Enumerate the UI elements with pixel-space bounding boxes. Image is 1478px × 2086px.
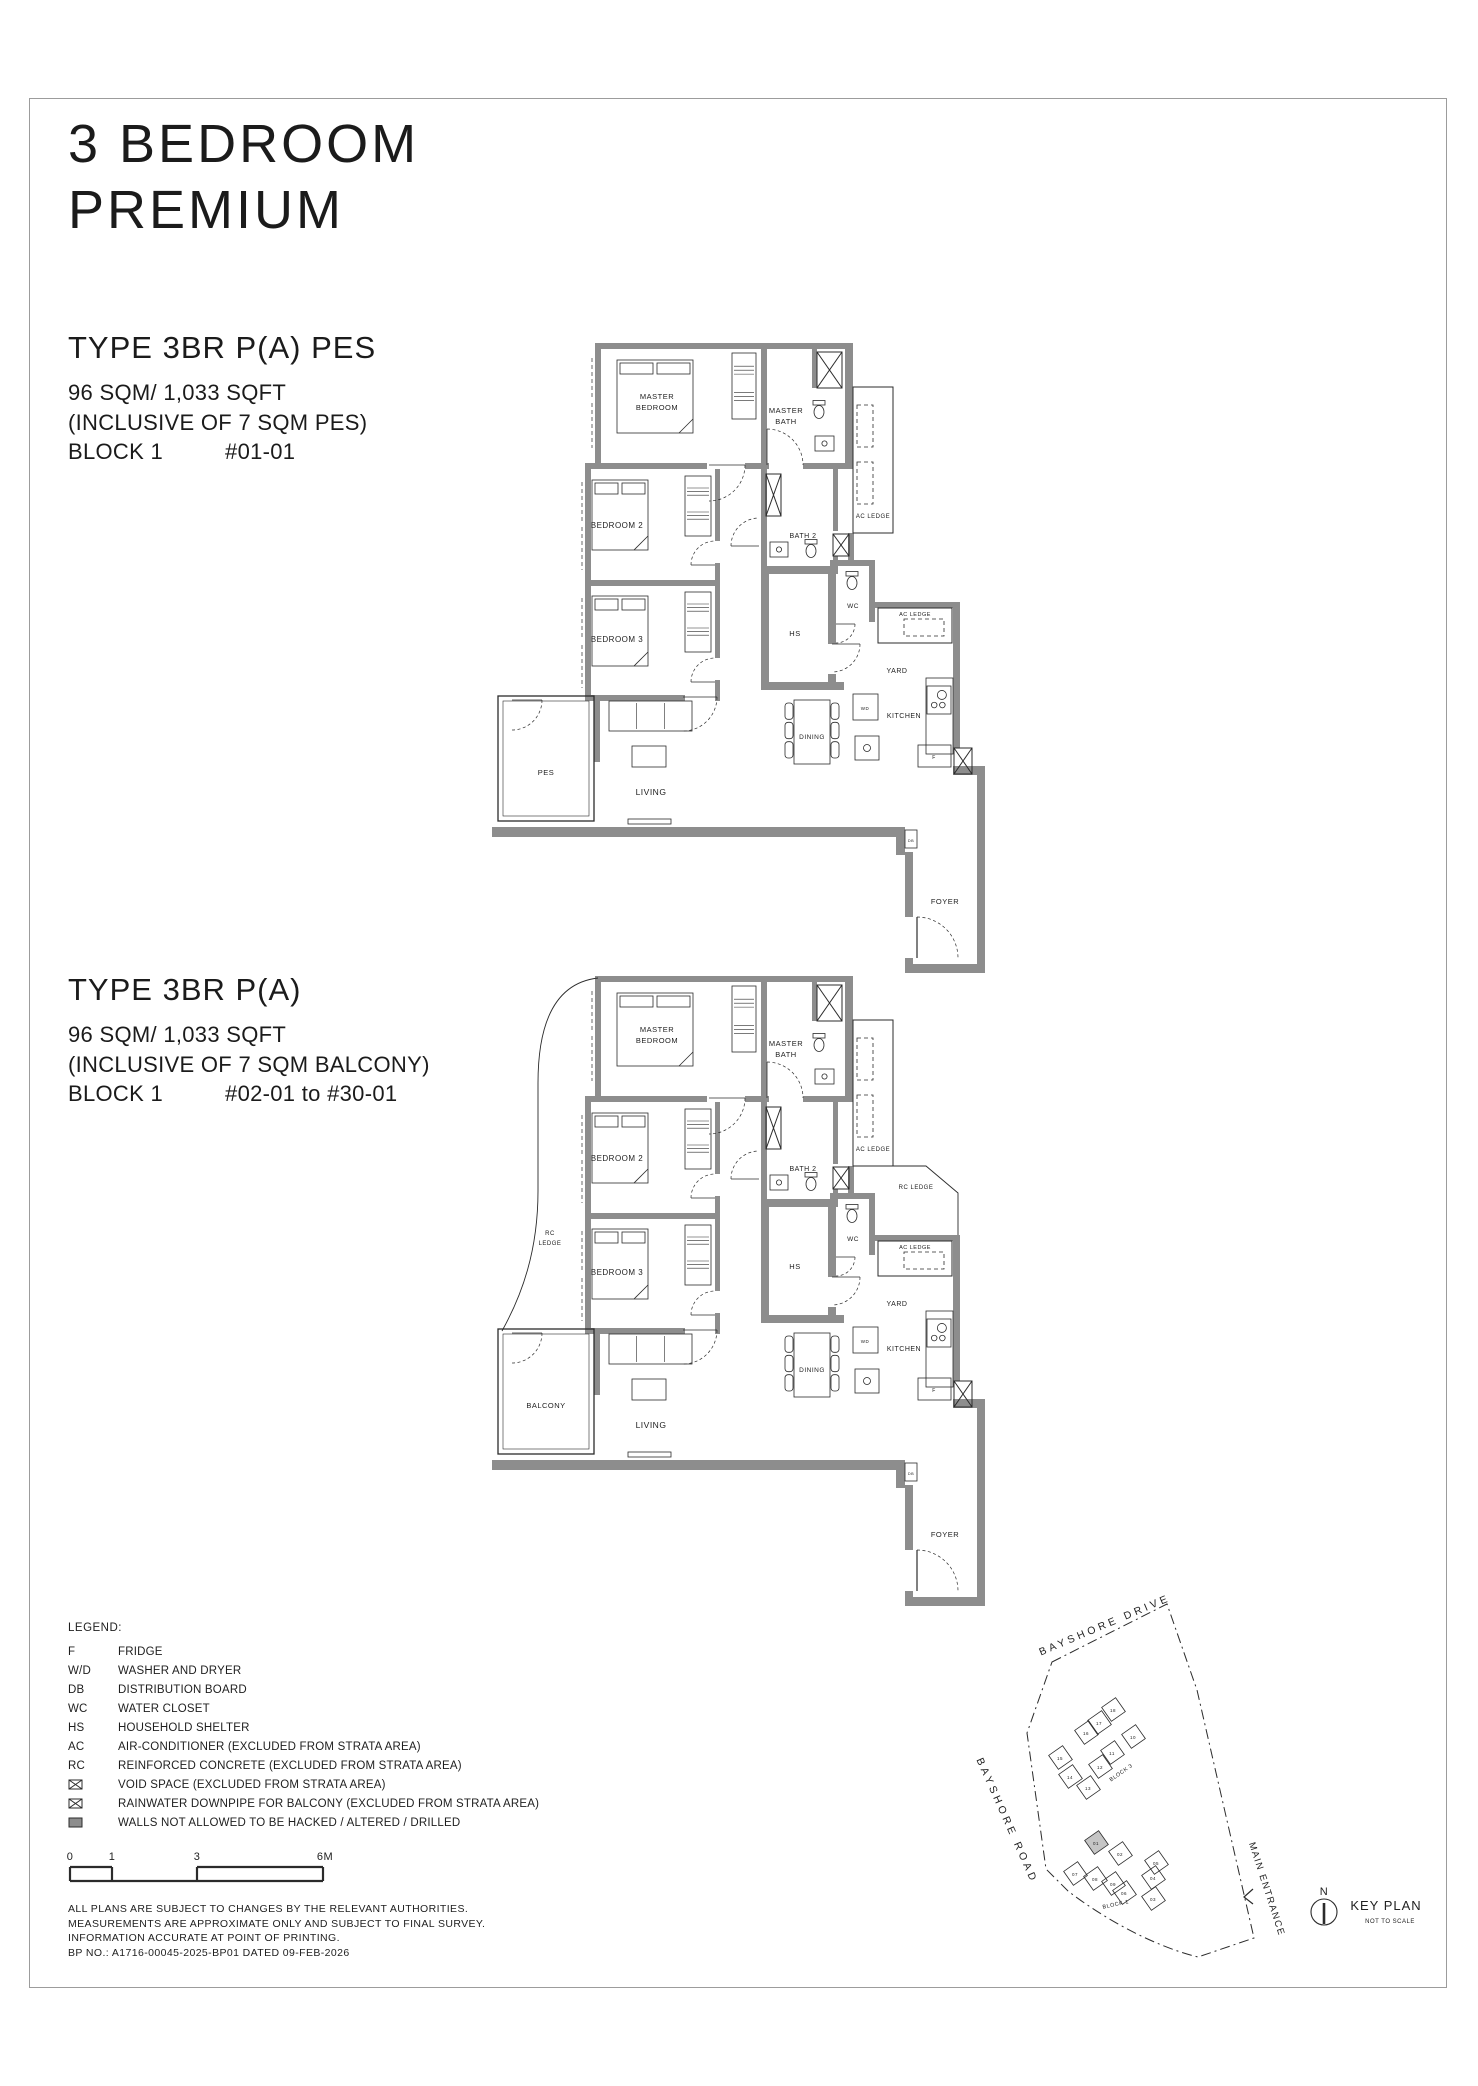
svg-text:16: 16 bbox=[1083, 1731, 1089, 1736]
svg-text:DB: DB bbox=[908, 839, 914, 843]
floor-plan-type-3br-pa: WDFDBMASTERBEDROOMMASTERBATHBEDROOM 2BED… bbox=[482, 966, 992, 1614]
room-label-yard: YARD bbox=[887, 668, 908, 675]
road-label-bayshore-drive: BAYSHORE DRIVE bbox=[1037, 1592, 1172, 1658]
label: 03 bbox=[1150, 1897, 1156, 1902]
label: 05 bbox=[1153, 1861, 1159, 1866]
keyplan-title-label: KEY PLAN bbox=[1350, 1898, 1421, 1913]
plan2-inclusive: (INCLUSIVE OF 7 SQM BALCONY) bbox=[68, 1050, 468, 1080]
label: LEDGE bbox=[539, 1241, 562, 1247]
plan2-area: 96 SQM/ 1,033 SQFT bbox=[68, 1020, 468, 1050]
svg-text:DINING: DINING bbox=[799, 1367, 825, 1374]
fridge-label: F bbox=[932, 1388, 936, 1394]
svg-text:BLOCK 3: BLOCK 3 bbox=[1109, 1763, 1134, 1783]
disclaimer: ALL PLANS ARE SUBJECT TO CHANGES BY THE … bbox=[68, 1902, 485, 1960]
legend-desc: WATER CLOSET bbox=[118, 1703, 210, 1715]
legend-desc: REINFORCED CONCRETE (EXCLUDED FROM STRAT… bbox=[118, 1760, 462, 1772]
fridge-label: F bbox=[932, 755, 936, 761]
svg-text:DB: DB bbox=[908, 1472, 914, 1476]
floor-plan-type-3br-pa-pes: WDFDBMASTERBEDROOMMASTERBATHBEDROOM 2BED… bbox=[482, 333, 992, 981]
svg-text:BATH: BATH bbox=[775, 1050, 796, 1059]
svg-text:12: 12 bbox=[1097, 1765, 1103, 1770]
disclaimer-line: INFORMATION ACCURATE AT POINT OF PRINTIN… bbox=[68, 1931, 485, 1946]
svg-text:WD: WD bbox=[861, 706, 870, 711]
room-label-bedroom3: BEDROOM 3 bbox=[591, 635, 644, 644]
svg-text:03: 03 bbox=[1150, 1897, 1156, 1902]
label: 14 bbox=[1067, 1775, 1073, 1780]
hack-wall-icon bbox=[68, 1817, 118, 1828]
svg-text:BATH 2: BATH 2 bbox=[790, 1166, 817, 1173]
svg-text:BEDROOM: BEDROOM bbox=[636, 403, 678, 412]
svg-text:AC LEDGE: AC LEDGE bbox=[856, 1147, 890, 1153]
room-label-yard: YARD bbox=[887, 1301, 908, 1308]
label: 3 bbox=[194, 1851, 201, 1863]
legend-desc: AIR-CONDITIONER (EXCLUDED FROM STRATA AR… bbox=[118, 1741, 421, 1753]
legend-desc: HOUSEHOLD SHELTER bbox=[118, 1722, 250, 1734]
plan1-block: BLOCK 1 bbox=[68, 439, 163, 464]
legend-row: HSHOUSEHOLD SHELTER bbox=[68, 1718, 628, 1737]
label: 12 bbox=[1097, 1765, 1103, 1770]
room-label-hs: HS bbox=[789, 629, 800, 638]
washer-dryer-label: WD bbox=[861, 706, 870, 711]
legend-row: WALLS NOT ALLOWED TO BE HACKED / ALTERED… bbox=[68, 1813, 628, 1832]
label: 18 bbox=[1110, 1708, 1116, 1713]
svg-text:FOYER: FOYER bbox=[931, 1530, 959, 1539]
void-space-icon bbox=[68, 1798, 118, 1809]
svg-text:RC: RC bbox=[545, 1231, 555, 1237]
svg-text:1: 1 bbox=[109, 1851, 116, 1863]
svg-text:01: 01 bbox=[1093, 1841, 1099, 1846]
svg-text:15: 15 bbox=[1057, 1756, 1063, 1761]
svg-text:FOYER: FOYER bbox=[931, 897, 959, 906]
key-plan: BAYSHORE DRIVEBAYSHORE ROADMAIN ENTRANCE… bbox=[948, 1586, 1478, 1986]
legend-title: LEGEND: bbox=[68, 1622, 628, 1634]
room-label-living: LIVING bbox=[636, 1420, 667, 1430]
room-label-balcony: BALCONY bbox=[526, 1401, 565, 1410]
legend-row: RAINWATER DOWNPIPE FOR BALCONY (EXCLUDED… bbox=[68, 1794, 628, 1813]
room-label-pes: PES bbox=[538, 768, 555, 777]
page-title-line2: PREMIUM bbox=[68, 178, 419, 244]
page-title: 3 BEDROOM PREMIUM bbox=[68, 112, 419, 244]
svg-text:F: F bbox=[932, 1388, 936, 1394]
svg-text:BLOCK 1: BLOCK 1 bbox=[1102, 1899, 1129, 1910]
room-label-kitchen: KITCHEN bbox=[887, 1346, 921, 1353]
svg-text:WC: WC bbox=[847, 603, 859, 610]
legend-desc: WASHER AND DRYER bbox=[118, 1665, 241, 1677]
svg-text:BEDROOM 2: BEDROOM 2 bbox=[591, 521, 644, 530]
legend-desc: FRIDGE bbox=[118, 1646, 163, 1658]
room-label-kitchen: KITCHEN bbox=[887, 713, 921, 720]
svg-text:WD: WD bbox=[861, 1339, 870, 1344]
label: BEDROOM bbox=[636, 1036, 678, 1045]
rc-ledge-right-label: RC LEDGE bbox=[899, 1185, 934, 1191]
block-1-label: BLOCK 1 bbox=[1102, 1899, 1129, 1910]
room-label-wc: WC bbox=[847, 1236, 859, 1243]
svg-text:KITCHEN: KITCHEN bbox=[887, 1346, 921, 1353]
label: 16 bbox=[1083, 1731, 1089, 1736]
svg-text:LIVING: LIVING bbox=[636, 787, 667, 797]
label: 6M bbox=[317, 1851, 333, 1863]
room-label-bedroom2: BEDROOM 2 bbox=[591, 1154, 644, 1163]
label: 17 bbox=[1096, 1721, 1102, 1726]
label: BATH bbox=[775, 1050, 796, 1059]
legend-abbr: HS bbox=[68, 1722, 118, 1734]
room-label-master-bath: MASTER bbox=[769, 406, 803, 415]
scale-bar: 0136M bbox=[60, 1848, 350, 1893]
label: 10 bbox=[1130, 1735, 1136, 1740]
label: 11 bbox=[1109, 1751, 1115, 1756]
label: BATH bbox=[775, 417, 796, 426]
legend-desc: VOID SPACE (EXCLUDED FROM STRATA AREA) bbox=[118, 1779, 386, 1791]
svg-text:10: 10 bbox=[1130, 1735, 1136, 1740]
legend-abbr: W/D bbox=[68, 1665, 118, 1677]
svg-text:AC LEDGE: AC LEDGE bbox=[856, 514, 890, 520]
svg-text:11: 11 bbox=[1109, 1751, 1115, 1756]
svg-text:BEDROOM 2: BEDROOM 2 bbox=[591, 1154, 644, 1163]
svg-text:BATH 2: BATH 2 bbox=[790, 533, 817, 540]
room-label-bath2: BATH 2 bbox=[790, 533, 817, 540]
svg-text:07: 07 bbox=[1072, 1872, 1078, 1877]
svg-text:WC: WC bbox=[847, 1236, 859, 1243]
room-label-ac-ledge-2: AC LEDGE bbox=[899, 1245, 931, 1251]
legend-rows: FFRIDGEW/DWASHER AND DRYERDBDISTRIBUTION… bbox=[68, 1642, 628, 1832]
legend-row: W/DWASHER AND DRYER bbox=[68, 1661, 628, 1680]
room-label-wc: WC bbox=[847, 603, 859, 610]
legend-row: DBDISTRIBUTION BOARD bbox=[68, 1680, 628, 1699]
svg-text:04: 04 bbox=[1150, 1876, 1156, 1881]
svg-text:KITCHEN: KITCHEN bbox=[887, 713, 921, 720]
north-label: N bbox=[1320, 1886, 1328, 1898]
label: BEDROOM bbox=[636, 403, 678, 412]
svg-text:YARD: YARD bbox=[887, 1301, 908, 1308]
legend-desc: RAINWATER DOWNPIPE FOR BALCONY (EXCLUDED… bbox=[118, 1798, 539, 1810]
plan2-block: BLOCK 1 bbox=[68, 1081, 163, 1106]
svg-text:YARD: YARD bbox=[887, 668, 908, 675]
svg-text:DINING: DINING bbox=[799, 734, 825, 741]
legend-abbr: WC bbox=[68, 1703, 118, 1715]
svg-text:MASTER: MASTER bbox=[769, 1039, 803, 1048]
legend-row: VOID SPACE (EXCLUDED FROM STRATA AREA) bbox=[68, 1775, 628, 1794]
label: 15 bbox=[1057, 1756, 1063, 1761]
svg-text:02: 02 bbox=[1117, 1852, 1123, 1857]
svg-text:13: 13 bbox=[1085, 1786, 1091, 1791]
plan1-inclusive: (INCLUSIVE OF 7 SQM PES) bbox=[68, 408, 468, 438]
legend-row: ACAIR-CONDITIONER (EXCLUDED FROM STRATA … bbox=[68, 1737, 628, 1756]
room-label-foyer: FOYER bbox=[931, 897, 959, 906]
disclaimer-line: MEASUREMENTS ARE APPROXIMATE ONLY AND SU… bbox=[68, 1917, 485, 1932]
svg-text:3: 3 bbox=[194, 1851, 201, 1863]
svg-text:RC LEDGE: RC LEDGE bbox=[899, 1185, 934, 1191]
room-label-master-bath: MASTER bbox=[769, 1039, 803, 1048]
room-label-bath2: BATH 2 bbox=[790, 1166, 817, 1173]
svg-text:BATH: BATH bbox=[775, 417, 796, 426]
legend-abbr: AC bbox=[68, 1741, 118, 1753]
svg-text:HS: HS bbox=[789, 1262, 800, 1271]
svg-text:0: 0 bbox=[67, 1851, 74, 1863]
void-space-icon bbox=[68, 1779, 118, 1790]
unit-01-highlighted: 01 bbox=[1093, 1841, 1099, 1846]
svg-text:PES: PES bbox=[538, 768, 555, 777]
svg-text:05: 05 bbox=[1153, 1861, 1159, 1866]
svg-text:KEY PLAN: KEY PLAN bbox=[1350, 1898, 1421, 1913]
label: 06 bbox=[1121, 1891, 1127, 1896]
svg-text:F: F bbox=[932, 755, 936, 761]
svg-text:AC LEDGE: AC LEDGE bbox=[899, 1245, 931, 1251]
plan1-units: #01-01 bbox=[225, 437, 295, 467]
legend-row: RCREINFORCED CONCRETE (EXCLUDED FROM STR… bbox=[68, 1756, 628, 1775]
room-label-bedroom3: BEDROOM 3 bbox=[591, 1268, 644, 1277]
svg-text:N: N bbox=[1320, 1886, 1328, 1898]
legend: LEGEND: FFRIDGEW/DWASHER AND DRYERDBDIST… bbox=[68, 1622, 628, 1832]
legend-desc: WALLS NOT ALLOWED TO BE HACKED / ALTERED… bbox=[118, 1817, 460, 1829]
plan1-block-line: BLOCK 1#01-01 bbox=[68, 437, 468, 467]
room-label-bedroom2: BEDROOM 2 bbox=[591, 521, 644, 530]
room-label-ac-ledge-1: AC LEDGE bbox=[856, 514, 890, 520]
page-title-line1: 3 BEDROOM bbox=[68, 112, 419, 178]
legend-row: WCWATER CLOSET bbox=[68, 1699, 628, 1718]
svg-text:LIVING: LIVING bbox=[636, 1420, 667, 1430]
label: 07 bbox=[1072, 1872, 1078, 1877]
svg-text:BAYSHORE DRIVE: BAYSHORE DRIVE bbox=[1037, 1592, 1172, 1658]
svg-text:MASTER: MASTER bbox=[640, 392, 674, 401]
legend-abbr: F bbox=[68, 1646, 118, 1658]
svg-text:NOT TO SCALE: NOT TO SCALE bbox=[1365, 1919, 1415, 1925]
room-label-dining: DINING bbox=[799, 1367, 825, 1374]
room-label-hs: HS bbox=[789, 1262, 800, 1271]
legend-abbr: RC bbox=[68, 1760, 118, 1772]
room-label-ac-ledge-1: AC LEDGE bbox=[856, 1147, 890, 1153]
svg-text:08: 08 bbox=[1092, 1877, 1098, 1882]
label: 0 bbox=[67, 1851, 74, 1863]
svg-text:BAYSHORE ROAD: BAYSHORE ROAD bbox=[974, 1756, 1040, 1885]
plan1-area: 96 SQM/ 1,033 SQFT bbox=[68, 378, 468, 408]
label: 1 bbox=[109, 1851, 116, 1863]
legend-desc: DISTRIBUTION BOARD bbox=[118, 1684, 247, 1696]
block-3-label: BLOCK 3 bbox=[1109, 1763, 1134, 1783]
svg-text:18: 18 bbox=[1110, 1708, 1116, 1713]
label: 08 bbox=[1092, 1877, 1098, 1882]
room-label-master-bedroom: MASTER bbox=[640, 392, 674, 401]
rc-ledge-left-label: RC bbox=[545, 1231, 555, 1237]
db-label: DB bbox=[908, 839, 914, 843]
plan2-type-title: TYPE 3BR P(A) bbox=[68, 972, 468, 1008]
road-label-bayshore-road: BAYSHORE ROAD bbox=[974, 1756, 1040, 1885]
label: 13 bbox=[1085, 1786, 1091, 1791]
disclaimer-line: BP NO.: A1716-00045-2025-BP01 DATED 09-F… bbox=[68, 1946, 485, 1961]
db-label: DB bbox=[908, 1472, 914, 1476]
svg-text:06: 06 bbox=[1121, 1891, 1127, 1896]
brochure-sheet: 3 BEDROOM PREMIUM TYPE 3BR P(A) PES 96 S… bbox=[0, 0, 1478, 2086]
room-label-ac-ledge-2: AC LEDGE bbox=[899, 612, 931, 618]
svg-text:BEDROOM 3: BEDROOM 3 bbox=[591, 635, 644, 644]
svg-text:HS: HS bbox=[789, 629, 800, 638]
plan2-block-line: BLOCK 1#02-01 to #30-01 bbox=[68, 1079, 468, 1109]
svg-text:BEDROOM: BEDROOM bbox=[636, 1036, 678, 1045]
keyplan-subtitle-label: NOT TO SCALE bbox=[1365, 1919, 1415, 1925]
svg-text:09: 09 bbox=[1110, 1882, 1116, 1887]
label: 04 bbox=[1150, 1876, 1156, 1881]
plan1-type-title: TYPE 3BR P(A) PES bbox=[68, 330, 468, 366]
plan2-header: TYPE 3BR P(A) 96 SQM/ 1,033 SQFT (INCLUS… bbox=[68, 972, 468, 1109]
washer-dryer-label: WD bbox=[861, 1339, 870, 1344]
plan1-header: TYPE 3BR P(A) PES 96 SQM/ 1,033 SQFT (IN… bbox=[68, 330, 468, 467]
room-label-foyer: FOYER bbox=[931, 1530, 959, 1539]
svg-text:LEDGE: LEDGE bbox=[539, 1241, 562, 1247]
svg-text:BALCONY: BALCONY bbox=[526, 1401, 565, 1410]
svg-text:MASTER: MASTER bbox=[769, 406, 803, 415]
svg-text:BEDROOM 3: BEDROOM 3 bbox=[591, 1268, 644, 1277]
room-label-master-bedroom: MASTER bbox=[640, 1025, 674, 1034]
legend-row: FFRIDGE bbox=[68, 1642, 628, 1661]
label: 02 bbox=[1117, 1852, 1123, 1857]
svg-text:MASTER: MASTER bbox=[640, 1025, 674, 1034]
room-label-living: LIVING bbox=[636, 787, 667, 797]
legend-abbr: DB bbox=[68, 1684, 118, 1696]
room-label-dining: DINING bbox=[799, 734, 825, 741]
svg-text:17: 17 bbox=[1096, 1721, 1102, 1726]
svg-text:6M: 6M bbox=[317, 1851, 333, 1863]
label: 09 bbox=[1110, 1882, 1116, 1887]
svg-text:AC LEDGE: AC LEDGE bbox=[899, 612, 931, 618]
plan2-units: #02-01 to #30-01 bbox=[225, 1079, 397, 1109]
svg-text:14: 14 bbox=[1067, 1775, 1073, 1780]
disclaimer-line: ALL PLANS ARE SUBJECT TO CHANGES BY THE … bbox=[68, 1902, 485, 1917]
